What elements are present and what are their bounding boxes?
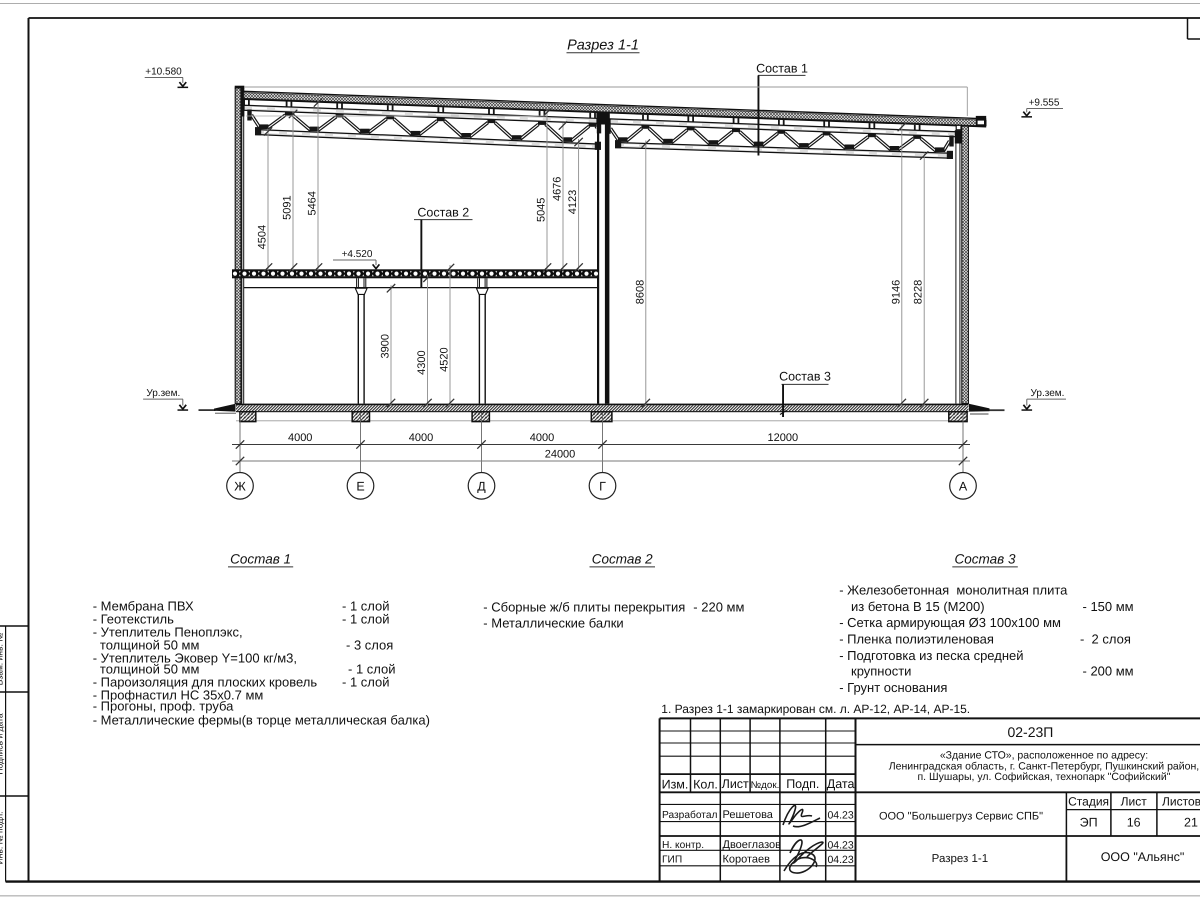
svg-text:- 3 слоя: - 3 слоя <box>346 638 393 653</box>
svg-text:Ур.зем.: Ур.зем. <box>146 388 180 399</box>
svg-text:Подп.: Подп. <box>786 777 819 791</box>
svg-text:№док.: №док. <box>751 780 780 791</box>
svg-text:Разрез 1-1: Разрез 1-1 <box>567 37 639 53</box>
svg-text:- Сетка армирующая Ø3 100x100: - Сетка армирующая Ø3 100x100 мм <box>839 615 1061 630</box>
svg-text:- 2 слоя: - 2 слоя <box>1080 632 1131 647</box>
svg-text:3900: 3900 <box>380 334 392 358</box>
svg-text:п. Шушары, ул. Софийская, техн: п. Шушары, ул. Софийская, технопарк "Соф… <box>918 771 1171 783</box>
svg-text:04.23: 04.23 <box>827 854 853 866</box>
svg-text:- 220 мм: - 220 мм <box>693 599 744 614</box>
svg-text:8608: 8608 <box>634 280 646 304</box>
svg-text:Лист: Лист <box>722 777 749 791</box>
svg-text:ООО "Альянс": ООО "Альянс" <box>1101 850 1185 864</box>
svg-text:9146: 9146 <box>890 280 902 304</box>
svg-text:Взам. инв. №: Взам. инв. № <box>0 633 5 686</box>
svg-text:- 200 мм: - 200 мм <box>1083 664 1134 679</box>
svg-text:Стадия: Стадия <box>1068 794 1109 808</box>
svg-text:Ж: Ж <box>234 479 246 493</box>
svg-text:ГИП: ГИП <box>662 855 682 866</box>
svg-text:4676: 4676 <box>552 177 564 201</box>
svg-text:Д: Д <box>477 479 486 493</box>
svg-text:Лист: Лист <box>1121 794 1148 808</box>
svg-text:- Пленка полиэтиленовая: - Пленка полиэтиленовая <box>839 632 994 647</box>
svg-text:4000: 4000 <box>530 432 554 444</box>
svg-text:02-23П: 02-23П <box>1007 724 1053 740</box>
svg-text:1. Разрез 1-1 замаркирован см.: 1. Разрез 1-1 замаркирован см. л. АР-12,… <box>661 702 970 716</box>
svg-text:Ур.зем.: Ур.зем. <box>1031 388 1065 399</box>
svg-text:из бетона В 15 (М200): из бетона В 15 (М200) <box>851 599 985 614</box>
svg-text:- 150 мм: - 150 мм <box>1083 599 1134 614</box>
svg-text:Г: Г <box>599 479 606 493</box>
svg-text:4000: 4000 <box>288 432 312 444</box>
svg-text:Дата: Дата <box>827 777 855 791</box>
svg-text:+9.555: +9.555 <box>1029 97 1060 108</box>
svg-text:Разрез 1-1: Разрез 1-1 <box>932 853 988 865</box>
svg-text:4520: 4520 <box>439 347 451 371</box>
svg-text:4000: 4000 <box>409 432 433 444</box>
svg-text:Подпись и дата: Подпись и дата <box>0 713 5 774</box>
svg-text:Состав 3: Состав 3 <box>955 552 1016 567</box>
svg-text:- 1 слой: - 1 слой <box>342 612 390 627</box>
svg-text:5464: 5464 <box>307 191 319 215</box>
svg-text:- Металлические балки: - Металлические балки <box>483 616 623 631</box>
svg-text:Состав 1: Состав 1 <box>230 552 291 567</box>
svg-text:12000: 12000 <box>768 432 799 444</box>
svg-text:5091: 5091 <box>282 195 294 219</box>
svg-text:- Подготовка из песка средней: - Подготовка из песка средней <box>839 648 1023 663</box>
svg-text:Коротаев: Коротаев <box>723 854 771 866</box>
svg-text:Разработал: Разработал <box>662 810 718 821</box>
svg-text:А: А <box>959 479 968 493</box>
svg-text:Состав 1: Состав 1 <box>756 62 808 76</box>
svg-text:- Сборные ж/б плиты перекрытия: - Сборные ж/б плиты перекрытия <box>483 599 685 614</box>
svg-text:Кол.: Кол. <box>693 777 718 791</box>
svg-text:16: 16 <box>1127 815 1141 829</box>
svg-text:Изм.: Изм. <box>662 777 689 791</box>
svg-text:- Металлические фермы(в торце: - Металлические фермы(в торце металличес… <box>93 712 430 727</box>
svg-text:5045: 5045 <box>536 198 548 222</box>
svg-text:Е: Е <box>356 479 364 493</box>
svg-text:4123: 4123 <box>567 190 579 214</box>
svg-text:4504: 4504 <box>257 225 269 249</box>
svg-text:Состав 2: Состав 2 <box>592 552 653 567</box>
svg-text:ЭП: ЭП <box>1080 815 1098 829</box>
svg-text:Решетова: Решетова <box>723 809 774 821</box>
svg-text:+10.580: +10.580 <box>145 66 182 77</box>
svg-text:- 1 слой: - 1 слой <box>342 675 390 690</box>
svg-text:Двоеглазов: Двоеглазов <box>723 839 782 851</box>
svg-text:- Железобетонная монолитная п: - Железобетонная монолитная плита <box>839 583 1068 598</box>
svg-text:04.23: 04.23 <box>827 810 853 822</box>
svg-text:21: 21 <box>1184 815 1198 829</box>
svg-text:4300: 4300 <box>416 350 428 374</box>
svg-text:Состав 2: Состав 2 <box>417 206 469 220</box>
svg-text:8228: 8228 <box>913 280 925 304</box>
svg-text:+4.520: +4.520 <box>342 249 373 260</box>
svg-text:- Грунт основания: - Грунт основания <box>839 680 947 695</box>
svg-text:крупности: крупности <box>851 664 911 679</box>
svg-text:Состав 3: Состав 3 <box>779 370 831 384</box>
svg-text:Инв. № подл.: Инв. № подл. <box>0 812 5 865</box>
svg-text:Листов: Листов <box>1162 794 1200 808</box>
svg-text:Н. контр.: Н. контр. <box>662 840 704 851</box>
svg-text:04.23: 04.23 <box>827 840 853 852</box>
svg-text:ООО "Большегруз Сервис СПБ": ООО "Большегруз Сервис СПБ" <box>879 811 1043 823</box>
svg-text:24000: 24000 <box>545 448 576 460</box>
